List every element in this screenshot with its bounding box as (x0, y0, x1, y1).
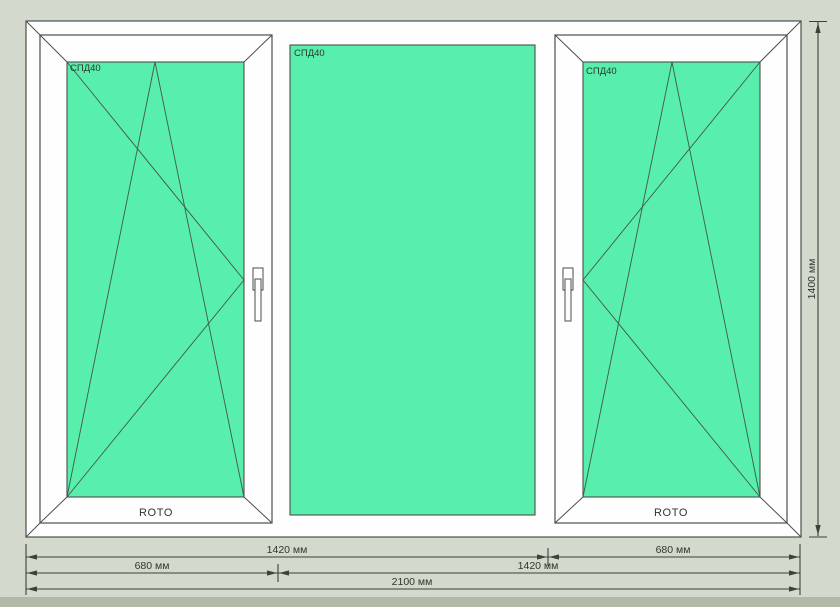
window-frame-group: СПД40 ROTO СПД40 СПД40 ROTO (26, 21, 801, 537)
handle-lever (565, 279, 571, 321)
right-glass-unit-label: СПД40 (586, 66, 617, 77)
handle-lever (255, 279, 261, 321)
left-sash-handle[interactable] (253, 268, 263, 321)
right-sash: СПД40 ROTO (555, 35, 787, 523)
dimension-label: 680 мм (135, 560, 170, 572)
center-fixed-glass[interactable] (290, 45, 535, 515)
left-glass-unit-label: СПД40 (70, 63, 101, 74)
right-hardware-brand-label: ROTO (654, 507, 688, 519)
canvas-bottom-edge (0, 597, 840, 607)
height-dimension-label: 1400 мм (806, 259, 818, 300)
window-drawing-canvas: СПД40 ROTO СПД40 СПД40 ROTO (0, 0, 840, 607)
total-width-dimension-label: 2100 мм (392, 576, 433, 588)
left-sash: СПД40 ROTO (40, 35, 272, 523)
dimension-label: 680 мм (656, 544, 691, 556)
center-section: СПД40 (290, 45, 535, 515)
left-sash-glass[interactable] (67, 62, 244, 497)
dimension-label: 1420 мм (267, 544, 308, 556)
right-sash-handle[interactable] (563, 268, 573, 321)
dimension-label: 1420 мм (518, 560, 559, 572)
left-hardware-brand-label: ROTO (139, 507, 173, 519)
center-glass-unit-label: СПД40 (294, 48, 325, 59)
right-sash-glass[interactable] (583, 62, 760, 497)
